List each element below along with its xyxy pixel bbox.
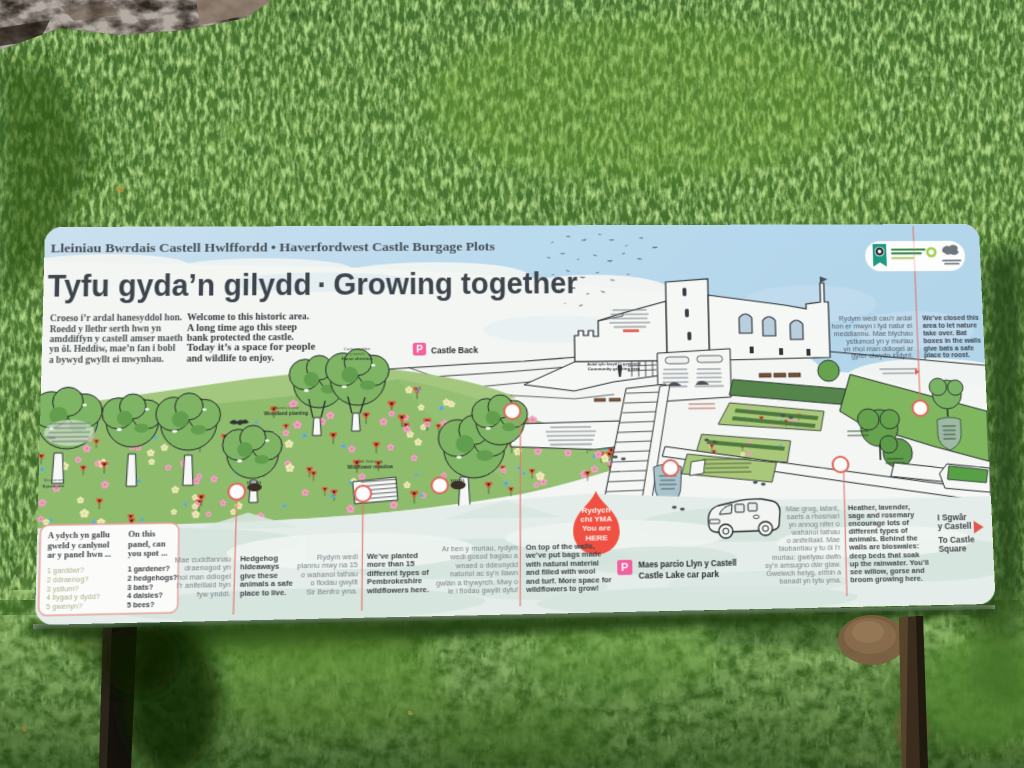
svg-text:broom growing here.: broom growing here. bbox=[850, 574, 923, 584]
svg-text:Castle Lake car park: Castle Lake car park bbox=[638, 569, 719, 581]
svg-text:boxes in the walls: boxes in the walls bbox=[923, 338, 981, 345]
svg-text:Square: Square bbox=[938, 544, 966, 554]
svg-text:ar y panel hwn ...: ar y panel hwn ... bbox=[47, 550, 111, 560]
svg-text:and wildlife to enjoy.: and wildlife to enjoy. bbox=[186, 353, 274, 365]
svg-text:le i flodau gwyllt dyfu!: le i flodau gwyllt dyfu! bbox=[448, 586, 518, 597]
svg-text:fyw ynddi.: fyw ynddi. bbox=[197, 589, 231, 599]
svg-text:Horse chestnut: Horse chestnut bbox=[341, 356, 373, 361]
svg-text:wildflowers here.: wildflowers here. bbox=[366, 585, 429, 595]
svg-text:gweld y canlynol: gweld y canlynol bbox=[48, 540, 111, 550]
svg-text:Plannu coetir: Plannu coetir bbox=[273, 405, 300, 410]
svg-text:A ydych yn gallu: A ydych yn gallu bbox=[48, 530, 111, 540]
svg-text:On this: On this bbox=[128, 529, 155, 539]
svg-text:P: P bbox=[416, 345, 423, 356]
svg-text:Sycamore: Sycamore bbox=[42, 483, 65, 488]
svg-text:P: P bbox=[621, 562, 629, 574]
svg-text:Wildflower meadow: Wildflower meadow bbox=[347, 464, 393, 471]
svg-text:Castle Back: Castle Back bbox=[431, 346, 478, 355]
svg-text:1 gardener?: 1 gardener? bbox=[128, 566, 170, 574]
svg-text:give bats a safe: give bats a safe bbox=[924, 345, 974, 352]
svg-text:banadl yn tyfu yma.: banadl yn tyfu yma. bbox=[779, 575, 841, 585]
svg-text:wildflowers to grow!: wildflowers to grow! bbox=[525, 584, 599, 595]
svg-text:Community growing area: Community growing area bbox=[588, 366, 641, 371]
svg-text:chi YMA: chi YMA bbox=[580, 515, 612, 524]
svg-text:5 gwenyn?: 5 gwenyn? bbox=[46, 604, 82, 612]
svg-text:place to roost.: place to roost. bbox=[924, 353, 970, 360]
svg-text:3 ystlum?: 3 ystlum? bbox=[46, 586, 78, 594]
svg-text:Masarnen: Masarnen bbox=[44, 477, 64, 482]
svg-text:2 hedgehogs?: 2 hedgehogs? bbox=[127, 575, 177, 583]
svg-text:4 llygad y dydd?: 4 llygad y dydd? bbox=[46, 594, 100, 602]
svg-text:4 daisies?: 4 daisies? bbox=[127, 593, 163, 601]
svg-text:Maes parcio Llyn y Castell: Maes parcio Llyn y Castell bbox=[638, 558, 736, 570]
svg-text:5 bees?: 5 bees? bbox=[127, 602, 155, 610]
svg-text:panel, can: panel, can bbox=[128, 539, 166, 549]
svg-text:place to live.: place to live. bbox=[240, 588, 287, 598]
svg-text:Lleiniau Bwrdais Castell Hwlff: Lleiniau Bwrdais Castell Hwlffordd • Hav… bbox=[51, 239, 495, 255]
svg-text:You are: You are bbox=[582, 524, 612, 533]
svg-text:2 ddraenog?: 2 ddraenog? bbox=[47, 576, 89, 584]
svg-text:1 garddwr?: 1 garddwr? bbox=[47, 567, 84, 575]
svg-text:take over. Bat: take over. Bat bbox=[923, 330, 968, 337]
svg-text:Rydych: Rydych bbox=[582, 505, 611, 514]
svg-text:We’ve closed this: We’ve closed this bbox=[922, 315, 979, 322]
svg-text:y meirch: y meirch bbox=[349, 351, 364, 356]
svg-text:Dôl flodeuog: Dôl flodeuog bbox=[358, 458, 384, 463]
svg-text:Woodland planting: Woodland planting bbox=[264, 411, 308, 417]
svg-text:3 bats?: 3 bats? bbox=[127, 584, 153, 592]
svg-text:Sir Benfro yma.: Sir Benfro yma. bbox=[306, 586, 358, 596]
svg-text:Tyfu gyda’n gilydd · Growing t: Tyfu gyda’n gilydd · Growing together bbox=[47, 266, 578, 304]
svg-text:you spot ...: you spot ... bbox=[128, 549, 168, 559]
svg-text:area to let nature: area to let nature bbox=[923, 323, 977, 330]
svg-text:a bywyd gwyllt ei mwynhau.: a bywyd gwyllt ei mwynhau. bbox=[49, 354, 164, 366]
svg-text:y Castell: y Castell bbox=[938, 521, 972, 531]
